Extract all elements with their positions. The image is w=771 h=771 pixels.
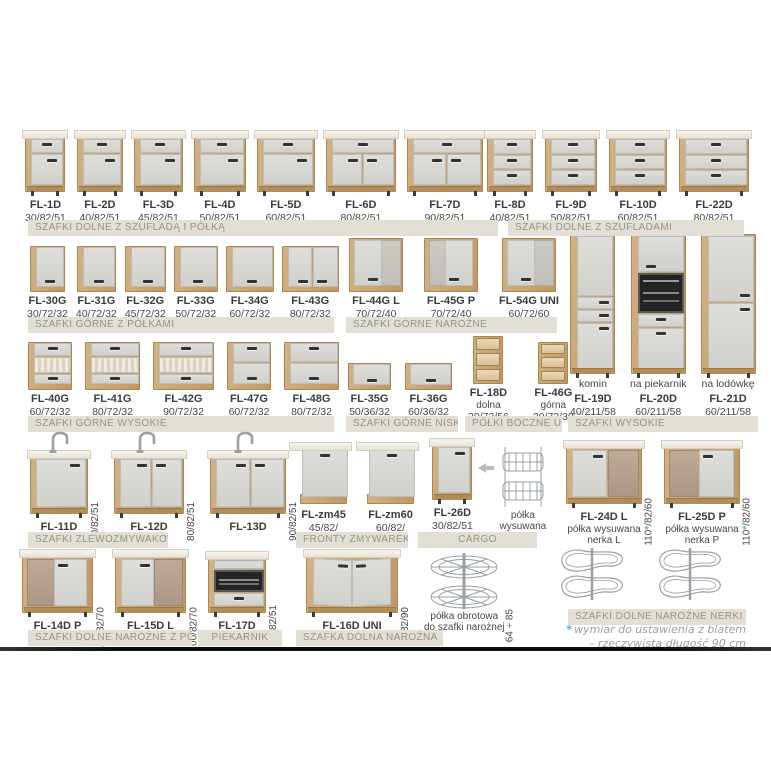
leg [685,191,688,196]
handle [387,454,397,457]
cabinet-card-fl-17d: 60/82/51FL-17D [208,551,266,633]
cabinet-card-fl-25d-p: 110*/82/60FL-25D Ppółka wysuwana nerka P [664,440,740,547]
handle [432,159,442,162]
cabinet-image [502,238,556,292]
cabinet-card-fl-35g: FL-35G50/36/32 [348,363,391,418]
handle [646,265,656,268]
group-wysokie: kominFL-19D40/211/58na piekarnikFL-20D60… [570,234,756,418]
cabinet-code: FL-24D L [580,511,627,524]
leg [177,612,180,617]
cabinet-code: FL-46G [534,387,572,400]
section-label-polki-boczne: PÓŁKI BOCZNE UNI [465,416,562,432]
cabinet-card-fl-10d: FL-10D60/82/51 [609,130,667,224]
cabinet-type-note: komin [579,378,607,390]
cabinet-image: 90/82/90 [306,549,398,617]
leg [312,612,315,617]
page-bottom-rule [0,647,771,651]
cabinet-image [284,342,339,390]
leg [658,191,661,196]
leg [615,191,618,196]
handle [140,564,150,567]
cabinet-card-fl-20d: na piekarnikFL-20D60/211/58 [630,234,687,418]
cabinet-card-fl-47g: FL-47G60/72/32 [227,342,271,418]
cabinet-image [364,438,417,506]
handle [309,347,319,350]
handle [155,143,165,146]
leg [387,191,390,196]
cabinet-code: FL-5D [270,199,301,212]
cabinet-note: półka wysuwana nerka L [567,524,640,546]
cabinet-code: FL-2D [84,199,115,212]
cabinet-note: półka wysuwana [500,510,547,532]
cabinet-code: FL-zm45 [301,509,346,522]
cabinet-code: FL-40G [31,393,69,406]
cabinet-dimensions: 30/82/51 [432,520,473,532]
leg [677,373,680,378]
section-label-gorne-niskie: SZAFKI GÓRNE NISKIE [346,416,458,432]
leg [121,612,124,617]
cabinet-card-fl-5d: FL-5D60/82/51 [257,130,315,224]
handle [451,159,461,162]
footnote-line1: wymiar do ustawienia z blatem [574,623,746,636]
cabinet-image [134,130,183,196]
cabinet-card-fl-26d: FL-26D30/82/51 [432,438,473,532]
handle [568,159,578,162]
handle [568,174,578,177]
section-label-gorne-narozne: SZAFKI GÓRNE NAROŻNE [346,317,557,333]
leg [474,191,477,196]
section-label-cargo: CARGO [418,532,537,548]
handle [181,347,191,350]
cabinet-image [487,130,533,196]
cabinet-image [227,342,271,390]
cabinet-code: FL-31G [77,295,115,308]
cabinet-note: górna [541,400,567,411]
cabinet-card-fl-15d-l: 100/82/70FL-15D L [115,549,186,633]
handle [338,564,348,568]
cabinet-card-fl-36g: FL-36G60/36/32 [405,363,452,418]
handle [740,294,750,297]
cabinet-card-fl-zm60: FL-zm6060/82/ [364,438,417,534]
handle [348,159,358,162]
leg [214,612,217,617]
handle [593,455,603,458]
cabinet-code: FL-4D [204,199,235,212]
handle [711,143,721,146]
cabinet-image [432,438,472,504]
handle [45,280,55,283]
cabinet-code: FL-3D [143,199,174,212]
cabinet-image: 60/82/51 [30,430,88,518]
leg [740,191,743,196]
handle [455,452,465,455]
section-label-dolne-szuflada-polka: SZAFKI DOLNE Z SZUFLADĄ I PÓŁKĄ [28,220,498,236]
cabinet-card-fl-30g: FL-30G30/72/32 [27,246,68,320]
handle [449,278,459,281]
cabinet-card-fl-11d: 60/82/51FL-11D [30,430,88,534]
group-gorne-narozne: FL-44G L70/72/40FL-45G P70/72/40FL-54G U… [349,238,559,320]
cabinet-card-fl-1d: FL-1D30/82/51 [25,130,66,224]
vertical-dimension: 110*/82/60 [644,498,655,546]
cabinet-card-fl-48g: FL-48G80/72/32 [284,342,339,418]
section-label-wysokie: SZAFKI WYSOKIE [568,416,758,432]
handle [356,564,366,568]
handle [48,377,58,380]
handle [317,280,327,283]
arrow-card [477,462,495,474]
handle [42,143,52,146]
cabinet-image [77,246,116,292]
asterisk-marker: * [566,623,572,636]
cabinet-image [153,342,214,390]
cabinet-card-fl-12d: 80/82/51FL-12D [114,430,184,534]
leg [31,191,34,196]
leg [237,191,240,196]
handle [507,159,517,162]
cabinet-card-fl-zm45: FL-zm4545/82/ [297,438,350,534]
cabinet-note: dolna [476,400,500,411]
handle [507,174,517,177]
handle [181,377,191,380]
cabinet-note: półka wysuwana nerka P [665,524,738,546]
leg [306,191,309,196]
handle [94,280,104,283]
cabinet-image [348,363,391,390]
cabinet-image: 80/82/51 [114,430,184,518]
cabinet-code: FL-8D [494,199,525,212]
group-dolna-narozna: 90/82/90FL-16D UNI64 ÷ 85półka obrotowa … [306,549,505,633]
cabinet-code: FL-34G [231,295,269,308]
handle [143,280,153,283]
section-label-gorne-polki: SZAFKI GÓRNE Z PÓŁKAMI [28,317,334,333]
leg [670,503,673,508]
handle [711,159,721,162]
cabinet-code: FL-19D [574,393,611,406]
handle [70,464,80,467]
leg [389,612,392,617]
cabinet-image [349,238,403,292]
handle [217,143,227,146]
cabinet-image [631,234,686,378]
cabinet-card-fl-54g-uni: FL-54G UNI60/72/60 [499,238,559,320]
cabinet-card-fl-21d: na lodówkęFL-21D60/211/58 [701,234,756,418]
cabinet-card-fl-31g: FL-31G40/72/32 [76,246,117,320]
cabinet-card-fl-32g: FL-32G45/72/32 [125,246,166,320]
nerka-card [656,546,726,602]
cabinet-image [30,246,65,292]
handle [165,159,175,162]
rotary-card: 64 ÷ 85półka obrotowa do szafki narożnej [424,551,505,633]
handle [236,464,246,467]
group-narozne-z-polka: 100/82/70FL-14D P100/82/70FL-15D L60/82/… [22,549,266,633]
cabinet-image: 110*/82/60 [664,440,740,508]
leg [588,191,591,196]
handle [47,159,57,162]
cabinet-image [545,130,597,196]
cabinet-card-fl-14d-p: 100/82/70FL-14D P [22,549,93,633]
cabinet-image [257,130,315,196]
cabinet-card-fl-22d: FL-22D80/82/51 [679,130,749,224]
handle [635,174,645,177]
cabinet-image [679,130,749,196]
leg [257,612,260,617]
handle [48,347,58,350]
cabinet-image [194,130,246,196]
cabinet-card-fl-13d: 90/82/51FL-13D [210,430,286,534]
handle [110,347,120,350]
group-polki-boczne: FL-18Ddolna20/72/56FL-46Ggórna20/72/30 [468,336,574,423]
cabinet-image [701,234,756,378]
section-label-fronty-zmywarek: FRONTY ZMYWAREK [296,532,408,548]
leg [277,513,280,518]
cabinet-card-fl-19d: kominFL-19D40/211/58 [570,234,616,418]
leg [731,503,734,508]
handle [368,278,378,281]
cabinet-code: FL-10D [619,199,656,212]
cabinet-card-fl-46g: FL-46Ggórna20/72/30 [533,342,574,423]
cabinet-code: FL-7D [429,199,460,212]
rotary-shelf-icon: 64 ÷ 85 [427,551,502,611]
nerka-card [558,546,628,602]
group-zlewozmywakowe: 60/82/51FL-11D80/82/51FL-12D90/82/51FL-1… [30,430,286,534]
cabinet-image: 90/82/51 [210,430,286,518]
handle [568,143,578,146]
handle [320,454,330,457]
vertical-dimension: 110*/82/60 [742,498,753,546]
handle [247,377,257,380]
section-label-zlewozmywakowe: SZAFKI ZLEWOZMYWAKOWE [28,532,168,548]
cabinet-image: 100/82/70 [22,549,93,617]
leg [413,191,416,196]
leg [216,513,219,518]
handle [58,564,68,567]
cabinet-code: FL-25D P [678,511,726,524]
leg [633,503,636,508]
cabinet-image [297,438,350,506]
leg [28,612,31,617]
cabinet-card-fl-7d: FL-7D90/82/51 [407,130,483,224]
group-fronty-zmywarek: FL-zm4545/82/FL-zm6060/82/ [297,438,417,534]
handle [110,377,120,380]
cabinet-code: FL-45G P [427,295,475,308]
section-label-dolne-szuflady: SZAFKI DOLNE Z SZUFLADAMI [508,220,744,236]
group-gorne-niskie: FL-35G50/36/32FL-36G60/36/32 [348,363,452,418]
leg [606,373,609,378]
leg [200,191,203,196]
handle [367,379,377,382]
handle [656,318,666,321]
leg [83,191,86,196]
cabinet-card-fl-8d: FL-8D40/82/51 [487,130,533,224]
group-gorne-polki: FL-30G30/72/32FL-31G40/72/32FL-32G45/72/… [27,246,339,320]
section-label-piekarnik: PIEKARNIK [198,630,282,646]
cargo-basket-card: półka wysuwana [499,444,547,532]
cabinet-card-fl-33g: FL-33G50/72/32 [174,246,218,320]
handle [234,597,244,600]
handle [442,143,452,146]
cabinet-code: FL-21D [709,393,746,406]
section-label-dolna-narozna: SZAFKA DOLNA NAROŻNA [296,630,443,646]
handle [283,143,293,146]
arrow-left-icon [477,462,495,474]
handle [521,278,531,281]
cabinet-card-fl-9d: FL-9D50/82/51 [545,130,597,224]
leg [114,191,117,196]
leg [332,191,335,196]
leg [463,499,466,504]
handle [599,327,609,330]
cabinet-image: 110*/82/60 [566,440,642,508]
handle [703,455,713,458]
group-nerki-szafki: 110*/82/60FL-24D Lpółka wysuwana nerka L… [566,440,740,547]
cabinet-card-fl-16d-uni: 90/82/90FL-16D UNI [306,549,398,633]
leg [438,499,441,504]
leg [84,612,87,617]
group-cargo: FL-26D30/82/51półka wysuwana [432,438,547,532]
handle [656,332,666,335]
cabinet-code: FL-20D [640,393,677,406]
faucet-icon [230,430,258,453]
handle [358,143,368,146]
handle [247,280,257,283]
handle [711,174,721,177]
faucet-icon [45,430,73,453]
cabinet-card-fl-40g: FL-40G60/72/32 [28,342,72,418]
cabinet-image [570,234,615,378]
cabinet-image [28,342,72,390]
cabinet-code: FL-44G L [352,295,400,308]
leg [36,513,39,518]
cabinet-code: FL-1D [30,199,61,212]
vertical-dimension: 80/82/51 [186,502,197,541]
leg [524,191,527,196]
handle [635,143,645,146]
cabinet-code: FL-33G [177,295,215,308]
cabinet-card-fl-4d: FL-4D50/82/51 [194,130,246,224]
handle [309,377,319,380]
group-dolne-szuflada-polka: FL-1D30/82/51FL-2D40/82/51FL-3D45/82/51F… [25,130,483,224]
cabinet-code: FL-35G [351,393,389,406]
leg [572,503,575,508]
handle [298,280,308,283]
section-label-gorne-wysokie: SZAFKI GÓRNE WYSOKIE [28,416,334,432]
handle [228,159,238,162]
cabinet-type-note: na piekarnik [630,378,687,390]
group-dolne-szuflady: FL-8D40/82/51FL-9D50/82/51FL-10D60/82/51… [487,130,749,224]
leg [120,513,123,518]
cabinet-image [538,342,568,384]
cabinet-code: FL-54G UNI [499,295,559,308]
kidney-shelf-icon [558,546,628,602]
cabinet-image [85,342,140,390]
handle [599,314,609,317]
cabinet-card-fl-45g-p: FL-45G P70/72/40 [424,238,478,320]
cabinet-code: FL-43G [291,295,329,308]
cabinet-code: FL-41G [94,393,132,406]
cabinet-code: FL-18D [470,387,507,400]
handle [297,159,307,162]
handle [255,464,265,467]
handle [426,379,436,382]
leg [79,513,82,518]
leg [493,191,496,196]
leg [175,513,178,518]
handle [507,143,517,146]
handle [97,143,107,146]
cabinet-image [282,246,339,292]
cabinet-image [407,130,483,196]
cabinet-code: FL-13D [229,521,266,534]
cabinet-card-fl-42g: FL-42G90/72/32 [153,342,214,418]
cargo-basket-icon [499,444,547,510]
leg [263,191,266,196]
cabinet-image [77,130,123,196]
cabinet-card-fl-34g: FL-34G60/72/32 [226,246,274,320]
leg [140,191,143,196]
cabinet-code: FL-9D [555,199,586,212]
cabinet-code: FL-32G [126,295,164,308]
cabinet-code: FL-zm60 [368,509,413,522]
group-nerki-wireframes [558,546,726,602]
handle [599,301,609,304]
cabinet-card-fl-3d: FL-3D45/82/51 [134,130,183,224]
cabinet-image [473,336,503,384]
cabinet-image: 100/82/70 [115,549,186,617]
cabinet-image [125,246,166,292]
cabinet-image [326,130,396,196]
kidney-shelf-icon [656,546,726,602]
cabinet-image [609,130,667,196]
cabinet-image: 60/82/51 [208,551,266,617]
handle [137,464,147,467]
cabinet-image [25,130,65,196]
cabinet-code: FL-22D [695,199,732,212]
cabinet-code: FL-6D [345,199,376,212]
cabinet-code: FL-36G [410,393,448,406]
leg [576,373,579,378]
leg [56,191,59,196]
leg [747,373,750,378]
handle [105,159,115,162]
cabinet-type-note: na lodówkę [702,378,755,390]
catalog-page: FL-1D30/82/51FL-2D40/82/51FL-3D45/82/51F… [0,0,771,771]
cabinet-code: FL-42G [165,393,203,406]
cabinet-image [405,363,452,390]
group-gorne-wysokie: FL-40G60/72/32FL-41G80/72/32FL-42G90/72/… [28,342,339,418]
handle [367,159,377,162]
cabinet-card-fl-44g-l: FL-44G L70/72/40 [349,238,403,320]
leg [174,191,177,196]
cabinet-card-fl-43g: FL-43G80/72/32 [282,246,339,320]
handle [740,308,750,311]
cabinet-image [174,246,218,292]
cabinet-image [424,238,478,292]
handle [156,464,166,467]
cabinet-code: FL-48G [293,393,331,406]
leg [707,373,710,378]
cabinet-card-fl-6d: FL-6D80/82/51 [326,130,396,224]
leg [637,373,640,378]
handle [193,280,203,283]
cabinet-card-fl-41g: FL-41G80/72/32 [85,342,140,418]
cabinet-card-fl-18d: FL-18Ddolna20/72/56 [468,336,509,423]
cabinet-code: FL-47G [230,393,268,406]
section-label-narozne-z-polka: SZAFKI DOLNE NAROŻNE Z PÓŁKĄ [28,630,192,646]
cabinet-card-fl-24d-l: 110*/82/60FL-24D Lpółka wysuwana nerka L [566,440,642,547]
handle [635,159,645,162]
leg [551,191,554,196]
faucet-icon [132,430,160,453]
